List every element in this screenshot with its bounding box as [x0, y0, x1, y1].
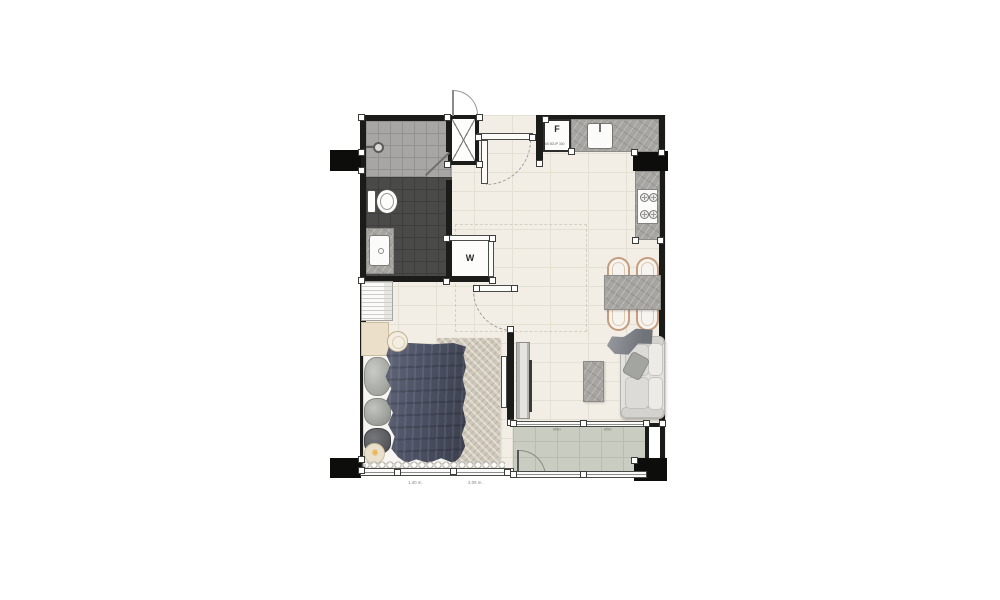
wall-post [394, 469, 401, 476]
candle-icon [372, 449, 378, 456]
wall [660, 426, 665, 460]
wall-post [358, 456, 365, 463]
wall [536, 119, 543, 164]
washer-label: W [448, 253, 492, 263]
wall-post [631, 149, 638, 156]
wall-post [658, 149, 665, 156]
sofa-seat [625, 377, 649, 409]
fridge-label: F [543, 124, 571, 134]
wall-post [443, 235, 450, 242]
sliding-door [501, 356, 507, 408]
wall-post [631, 457, 638, 464]
column [330, 150, 361, 171]
shower-partition [366, 176, 428, 177]
toilet-bowl-inner [380, 193, 394, 210]
wall-post [504, 469, 511, 476]
wall [360, 115, 452, 121]
wall-post [476, 114, 483, 121]
wall-post [542, 116, 549, 123]
toilet-tank [367, 190, 376, 213]
bedroom-door-leaf [475, 285, 515, 292]
burner-icon [640, 193, 649, 202]
duvet-folds [383, 343, 466, 463]
wall-post [358, 149, 365, 156]
burner-icon [640, 210, 649, 219]
shaft-void [649, 427, 660, 460]
wall-post [444, 114, 451, 121]
wall-post [489, 235, 496, 242]
wall-post [511, 285, 518, 292]
dimension-label: 1.40 m. [408, 480, 423, 485]
wall-post [568, 148, 575, 155]
basin-drain [378, 248, 384, 254]
wall-post [475, 134, 482, 141]
tv-screen [529, 360, 532, 412]
wall-post [510, 471, 517, 478]
bed-pillow [364, 398, 391, 426]
wall-post [358, 467, 365, 474]
wall-post [450, 468, 457, 475]
sofa-back-cushion [648, 377, 663, 410]
floor-plan: F 65 50UP 300 W 1.4 [0, 0, 1000, 600]
wall-post [358, 277, 365, 284]
kitchen-faucet-icon [599, 123, 601, 132]
wall-post [489, 277, 496, 284]
dining-table [604, 275, 661, 310]
wall-post [476, 161, 483, 168]
wall-post [507, 326, 514, 333]
entry-wall-bar [477, 133, 533, 140]
burner-icon [649, 193, 658, 202]
washer-front-bar [449, 235, 491, 241]
fridge-note: 65 50UP 300 [545, 142, 565, 146]
coffee-table [583, 361, 604, 402]
drain-mark: Ø50 [604, 427, 612, 432]
tv-console [516, 342, 530, 419]
shower-head-icon [373, 142, 384, 153]
wall-post [643, 420, 650, 427]
wall-post [536, 160, 543, 167]
wall-post [444, 161, 451, 168]
wall-post [657, 237, 664, 244]
wall-post [632, 237, 639, 244]
wall-post [443, 278, 450, 285]
wall [507, 327, 514, 424]
wall-post [358, 114, 365, 121]
burner-icon [649, 210, 658, 219]
nightstand [361, 322, 389, 356]
wall-post [473, 285, 480, 292]
wall-post [659, 420, 666, 427]
kitchen-counter [571, 119, 659, 152]
wardrobe [361, 281, 393, 321]
wall-post [529, 134, 536, 141]
wall-post [358, 167, 365, 174]
stove-icon [637, 189, 658, 224]
window-bedroom [360, 468, 514, 476]
dimension-label: 2.05 m. [468, 480, 483, 485]
wall-post [510, 420, 517, 427]
drain-mark: Ø50 [553, 427, 561, 432]
wall-post [580, 471, 587, 478]
table-lamp-ring [392, 336, 405, 349]
service-door-arc [453, 90, 478, 115]
column [330, 458, 361, 478]
sofa-back-cushion [648, 343, 663, 376]
wall-post [580, 420, 587, 427]
